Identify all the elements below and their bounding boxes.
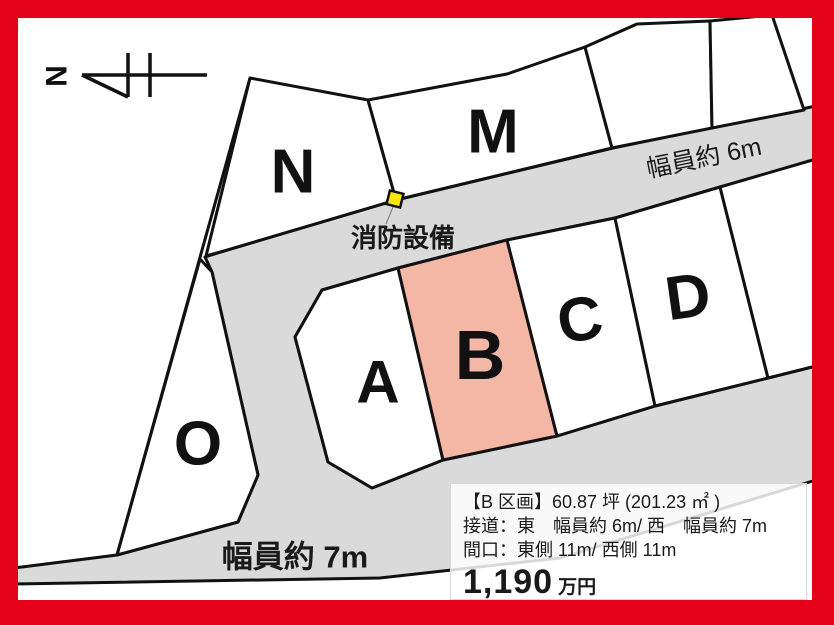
road-width-7m-label: 幅員約 7m bbox=[222, 540, 368, 575]
north-label: N bbox=[41, 65, 74, 87]
plot-D-label: D bbox=[661, 260, 715, 335]
plot-B-label: B bbox=[455, 316, 506, 394]
plot-N-label: N bbox=[271, 138, 316, 207]
fire-equipment-marker bbox=[387, 191, 404, 208]
plot-A-label: A bbox=[356, 349, 399, 416]
plot-b-price-unit: 万円 bbox=[558, 577, 596, 598]
plot-b-access: 接道：東 幅員約 6m/ 西 幅員約 7m bbox=[463, 514, 806, 538]
plot-O-label: O bbox=[174, 410, 222, 479]
plot-b-price: 1,190 bbox=[463, 563, 553, 601]
plot-b-title: 【B 区画】60.87 坪 (201.23 ㎡ ) bbox=[463, 490, 806, 514]
plot-b-info-box: 【B 区画】60.87 坪 (201.23 ㎡ ) 接道：東 幅員約 6m/ 西… bbox=[450, 483, 807, 600]
fire-equipment-label: 消防設備 bbox=[351, 223, 455, 253]
plot-map-page: { "colors": { "frame": "#E50019", "road"… bbox=[0, 0, 834, 625]
plot-b-price-row: 1,190万円 bbox=[463, 563, 806, 602]
plot-b-frontage: 間口：東側 11m/ 西側 11m bbox=[463, 538, 806, 562]
plot-M-label: M bbox=[467, 98, 519, 167]
